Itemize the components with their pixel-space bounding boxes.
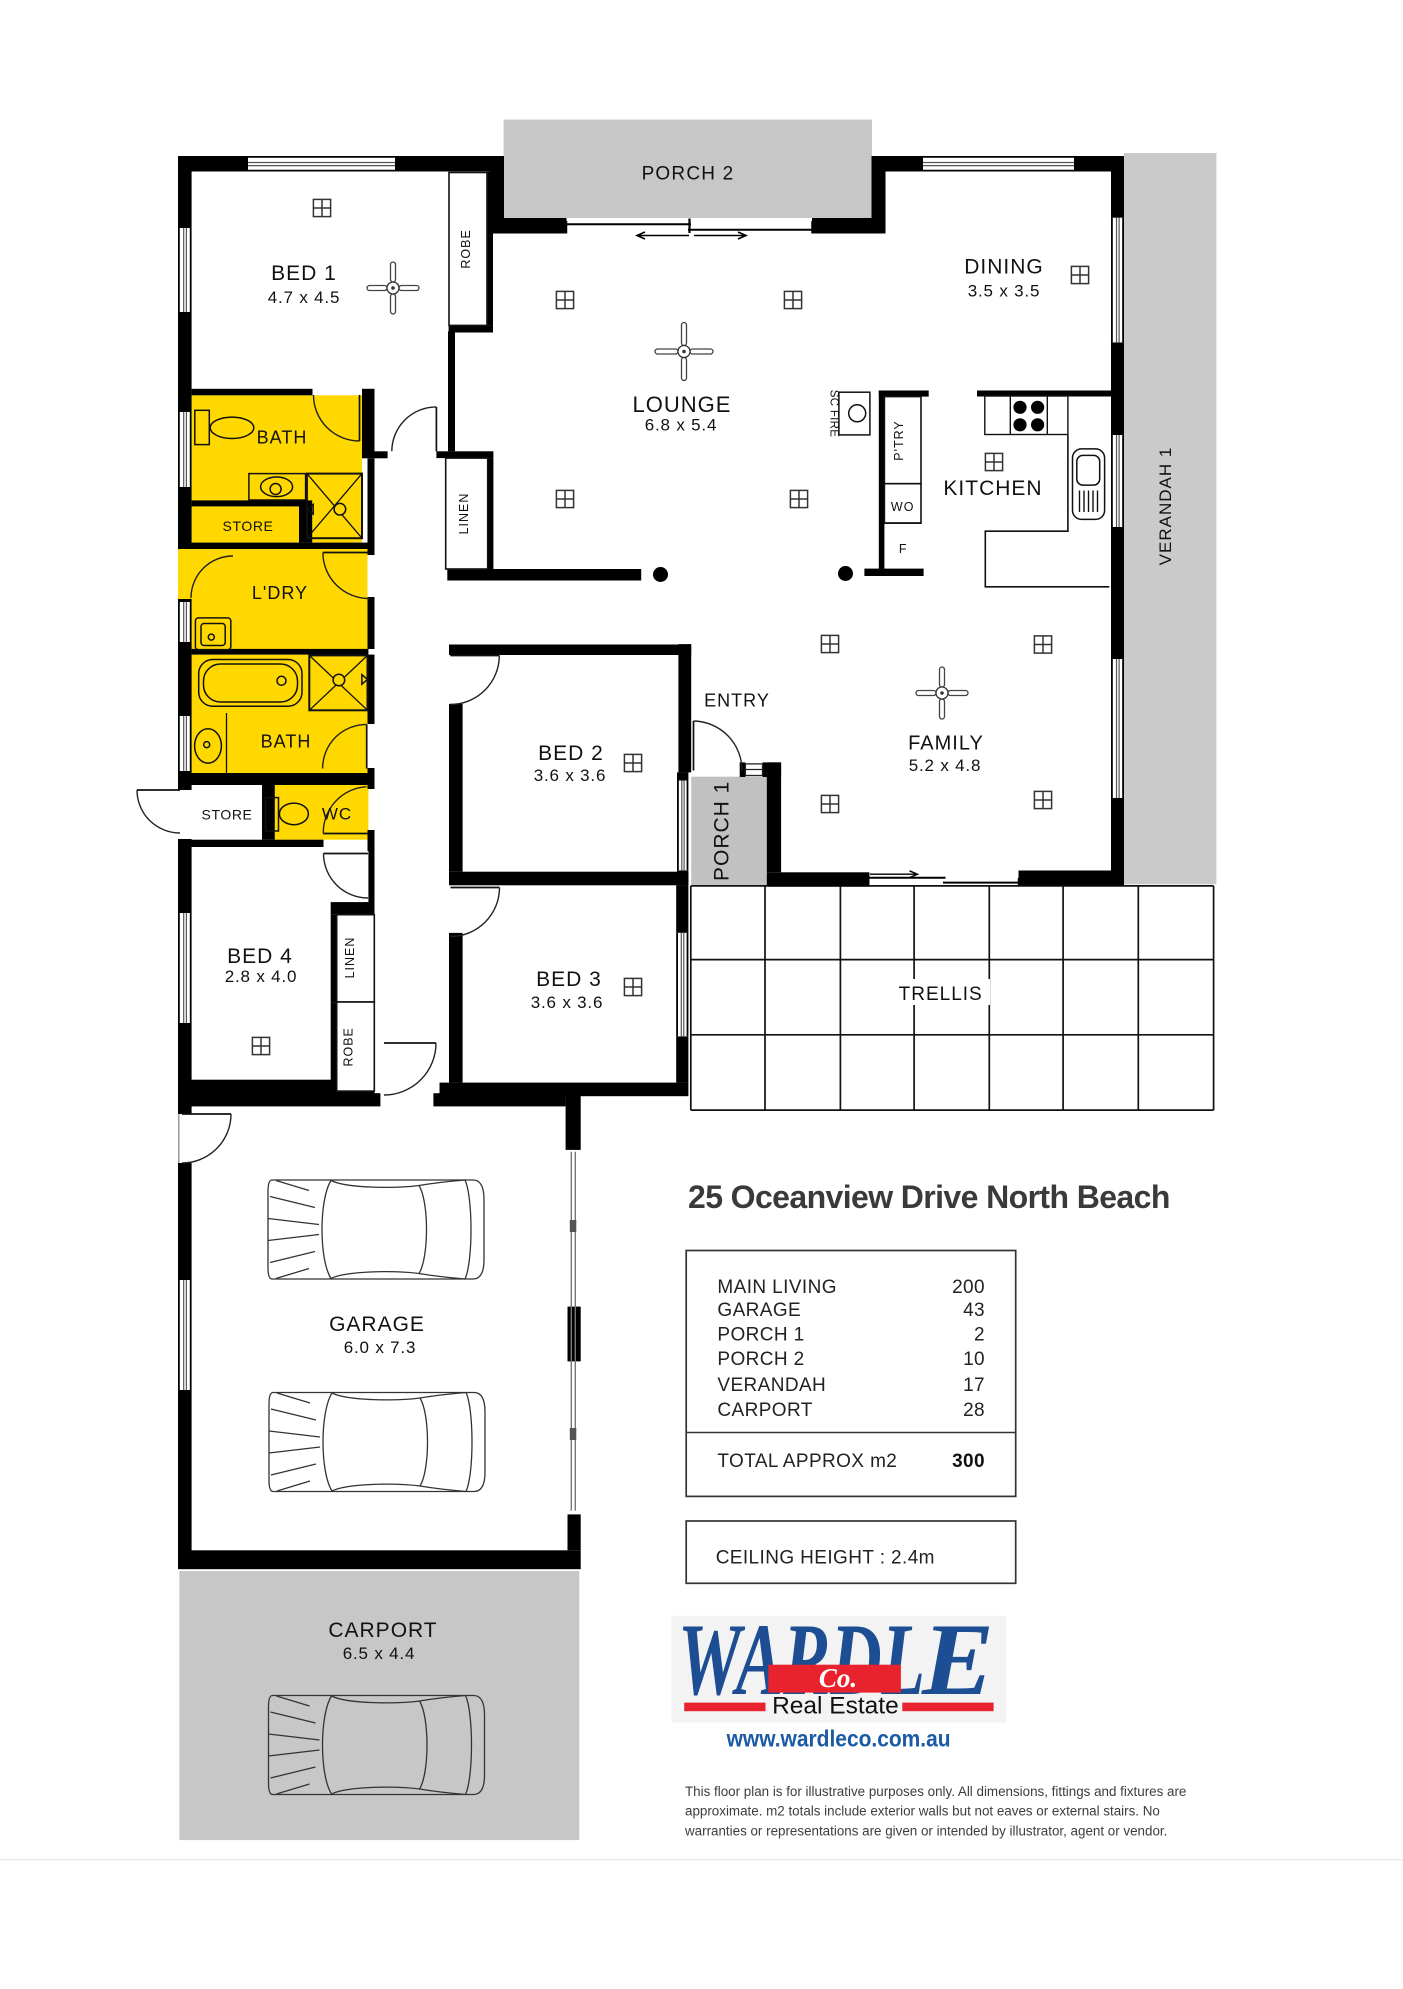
svg-text:10: 10 [963,1349,985,1370]
svg-text:4.7 x 4.5: 4.7 x 4.5 [268,288,340,307]
svg-text:300: 300 [952,1451,985,1472]
svg-text:SC FIRE: SC FIRE [828,390,840,437]
svg-text:www.wardleco.com.au: www.wardleco.com.au [726,1726,951,1752]
svg-text:BATH: BATH [257,428,308,448]
svg-text:GARAGE: GARAGE [329,1313,425,1336]
svg-text:TOTAL APPROX m2: TOTAL APPROX m2 [717,1451,897,1472]
svg-text:CARPORT: CARPORT [328,1619,437,1642]
svg-text:WC: WC [322,805,352,824]
svg-text:BED 2: BED 2 [538,742,604,765]
svg-text:43: 43 [963,1300,985,1321]
svg-text:LOUNGE: LOUNGE [633,392,732,417]
svg-text:PORCH 2: PORCH 2 [717,1349,804,1370]
svg-text:DINING: DINING [964,256,1044,279]
svg-text:6.5 x 4.4: 6.5 x 4.4 [343,1644,415,1663]
svg-text:25 Oceanview Drive North Beach: 25 Oceanview Drive North Beach [688,1179,1170,1215]
svg-text:BED 3: BED 3 [536,968,602,991]
svg-text:BED 4: BED 4 [227,945,293,968]
svg-text:warranties or representations: warranties or representations are given … [684,1823,1167,1838]
svg-text:approximate. m2 totals include: approximate. m2 totals include exterior … [685,1804,1160,1819]
svg-text:28: 28 [963,1400,985,1421]
svg-text:STORE: STORE [223,518,274,534]
svg-text:FAMILY: FAMILY [908,733,984,755]
svg-text:LINEN: LINEN [457,493,471,535]
svg-text:P'TRY: P'TRY [892,420,906,461]
svg-text:STORE: STORE [202,807,253,823]
svg-text:Real Estate: Real Estate [772,1693,899,1720]
svg-text:3.5 x 3.5: 3.5 x 3.5 [968,282,1040,301]
svg-text:VERANDAH: VERANDAH [717,1375,826,1396]
svg-text:BED 1: BED 1 [271,262,337,285]
svg-text:MAIN LIVING: MAIN LIVING [717,1277,836,1298]
svg-text:VERANDAH 1: VERANDAH 1 [1156,447,1175,566]
svg-text:5.2 x 4.8: 5.2 x 4.8 [909,756,981,775]
svg-text:17: 17 [963,1375,985,1396]
svg-text:6.0 x 7.3: 6.0 x 7.3 [344,1338,416,1357]
svg-text:TRELLIS: TRELLIS [899,984,983,1005]
svg-text:PORCH 1: PORCH 1 [717,1325,804,1346]
svg-text:PORCH 1: PORCH 1 [710,781,733,881]
svg-text:2.8 x 4.0: 2.8 x 4.0 [225,967,297,986]
svg-text:WO: WO [891,500,915,514]
svg-text:L'DRY: L'DRY [252,583,308,603]
svg-text:ROBE: ROBE [341,1027,355,1066]
svg-text:BATH: BATH [261,732,312,752]
svg-text:ROBE: ROBE [459,229,473,268]
svg-text:GARAGE: GARAGE [717,1300,801,1321]
svg-text:6.8 x 5.4: 6.8 x 5.4 [645,416,717,435]
svg-text:Co.: Co. [819,1663,857,1693]
svg-text:200: 200 [952,1277,985,1298]
svg-text:LINEN: LINEN [343,937,357,979]
svg-text:CARPORT: CARPORT [717,1400,812,1421]
svg-text:ENTRY: ENTRY [704,691,770,711]
svg-text:3.6 x 3.6: 3.6 x 3.6 [534,766,606,785]
svg-text:E: E [921,1603,994,1717]
svg-text:This floor plan is for illustr: This floor plan is for illustrative purp… [685,1784,1186,1799]
svg-text:2: 2 [974,1325,985,1346]
svg-text:F: F [899,542,908,556]
svg-text:PORCH 2: PORCH 2 [642,164,735,185]
svg-text:3.6 x 3.6: 3.6 x 3.6 [531,993,603,1012]
svg-text:CEILING HEIGHT : 2.4m: CEILING HEIGHT : 2.4m [716,1548,935,1569]
svg-text:KITCHEN: KITCHEN [943,477,1042,500]
